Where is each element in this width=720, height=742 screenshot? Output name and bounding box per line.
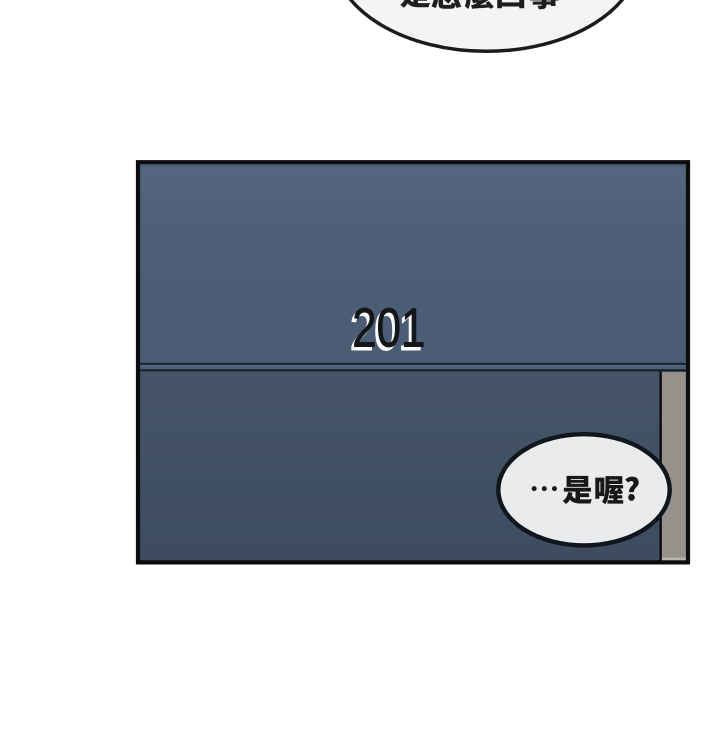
svg-text:201: 201 xyxy=(352,297,425,359)
